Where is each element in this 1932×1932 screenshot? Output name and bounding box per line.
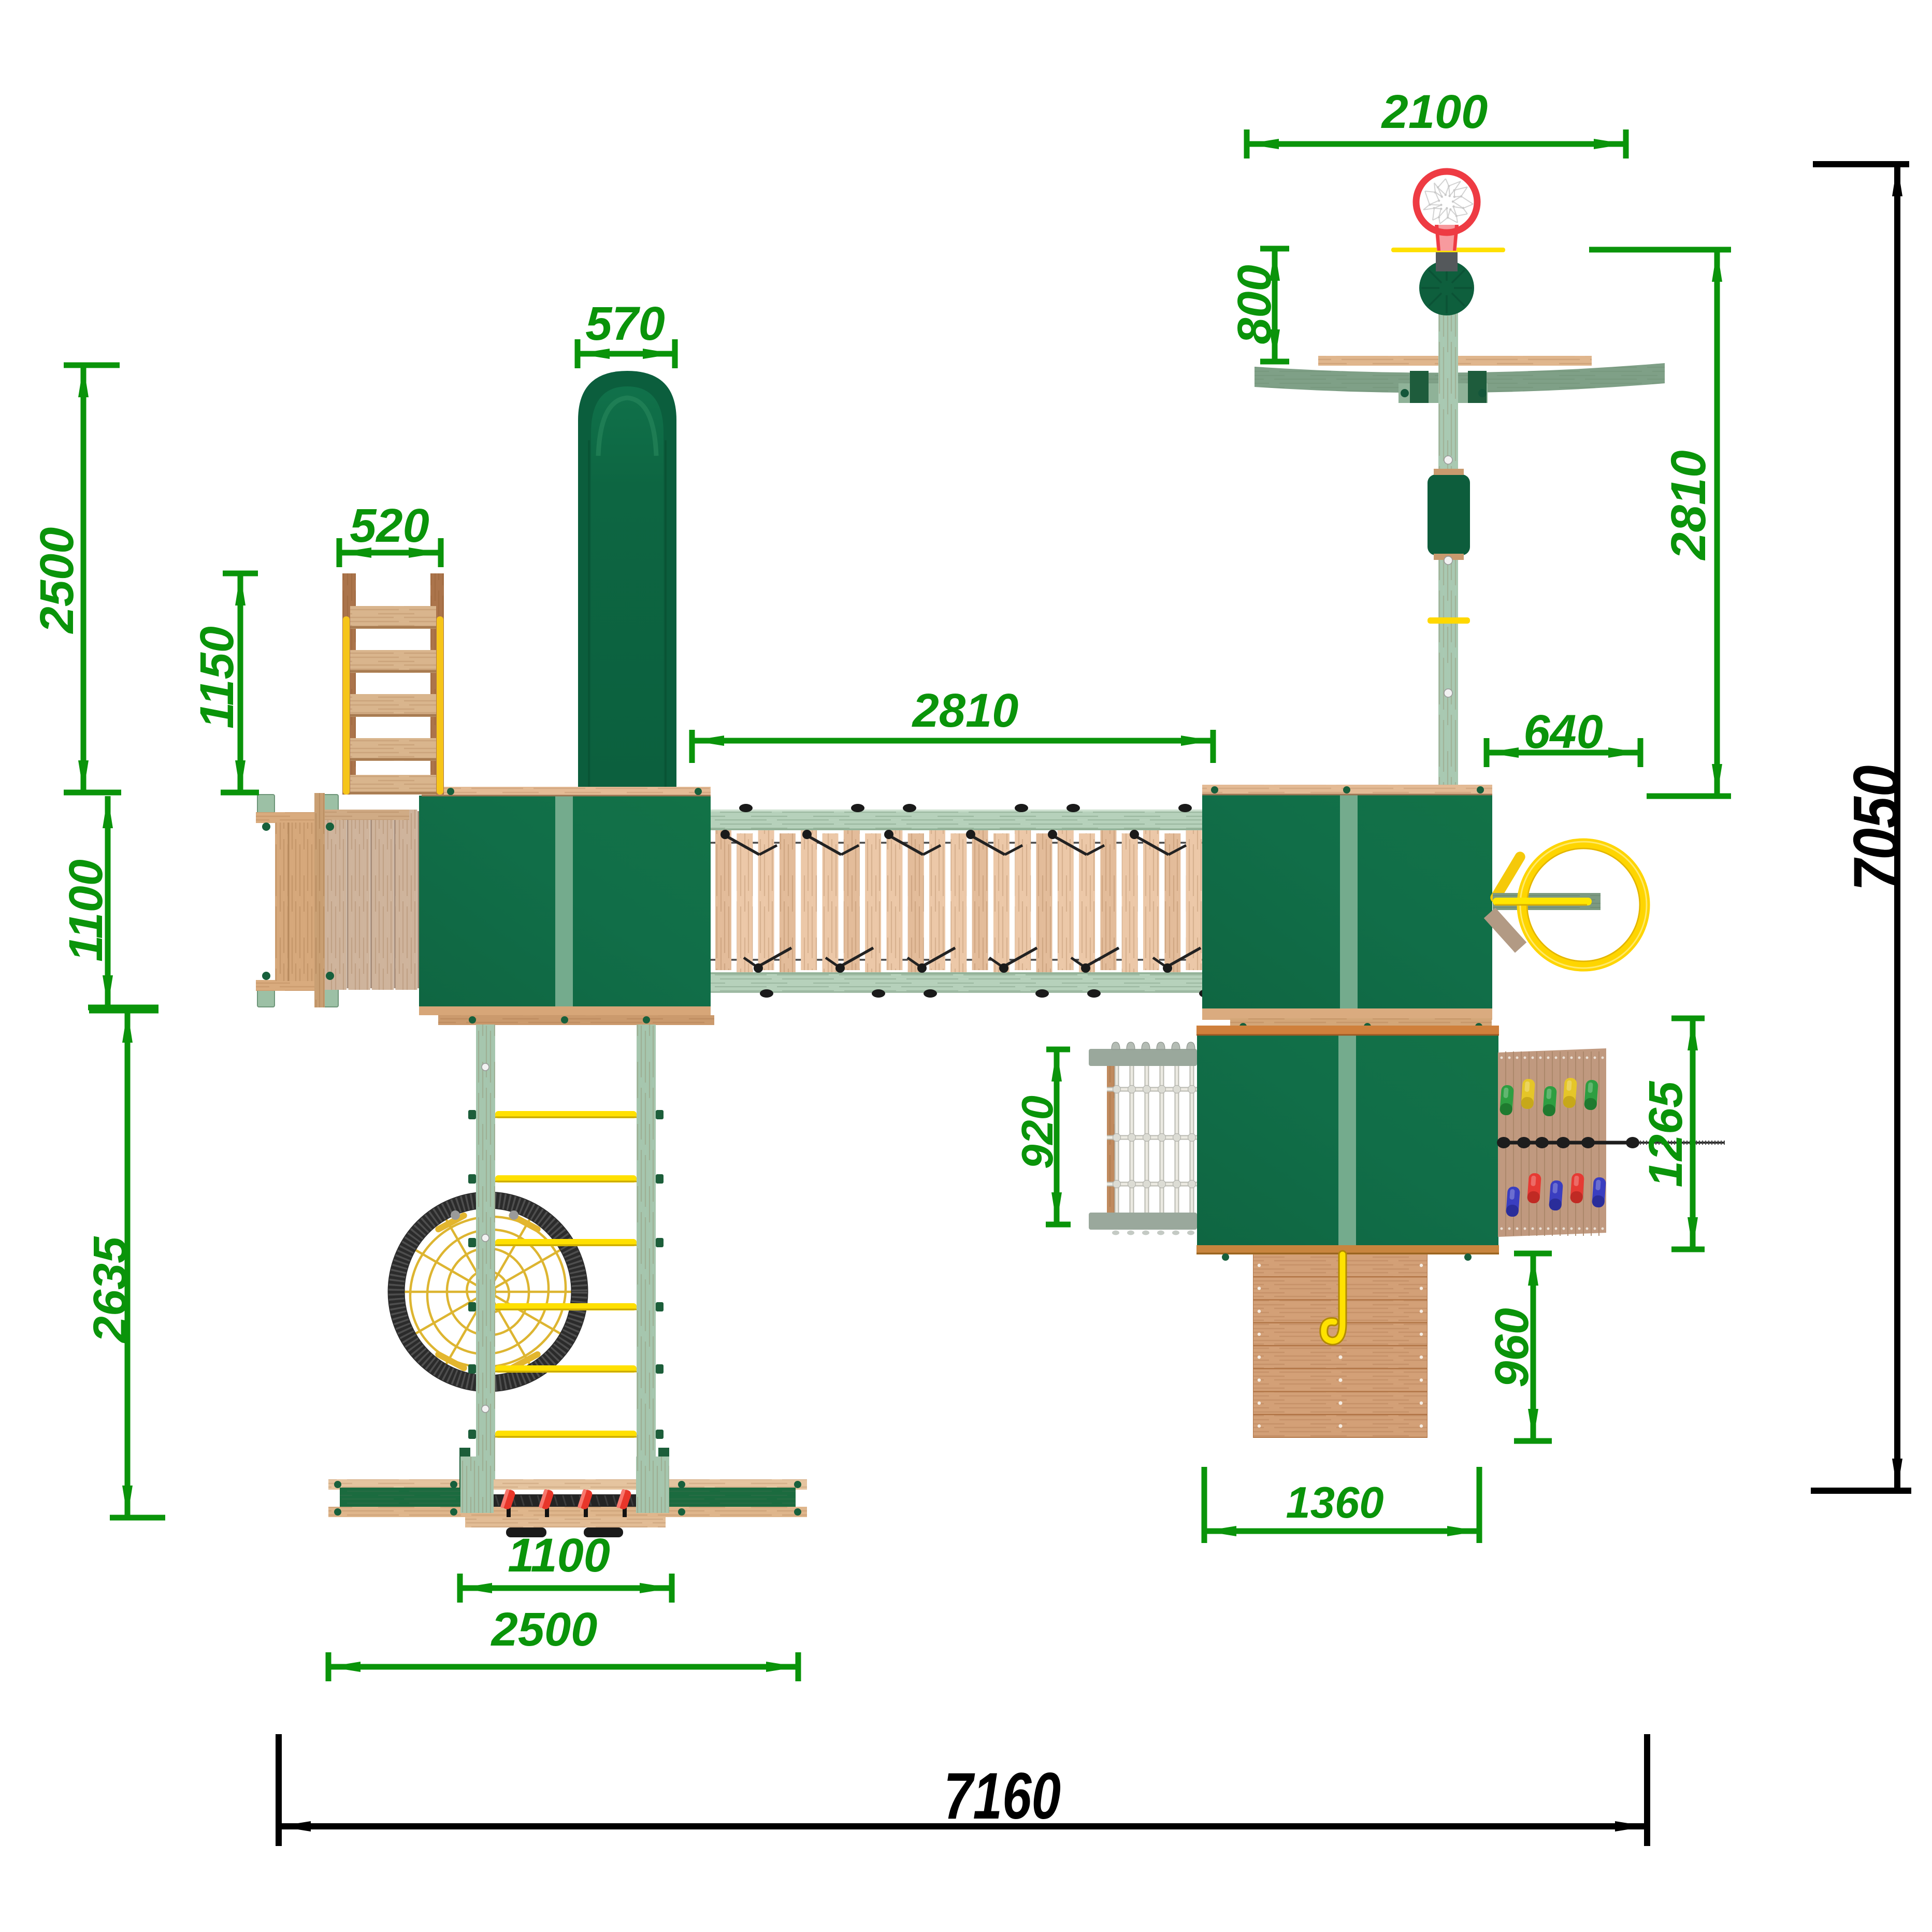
- svg-text:1100: 1100: [60, 859, 112, 962]
- svg-text:2500: 2500: [491, 1603, 598, 1656]
- svg-text:960: 960: [1486, 1308, 1538, 1388]
- svg-text:7050: 7050: [1840, 766, 1914, 891]
- svg-text:920: 920: [1013, 1095, 1062, 1169]
- svg-text:2500: 2500: [31, 527, 83, 635]
- svg-text:7160: 7160: [944, 1760, 1061, 1833]
- svg-text:2100: 2100: [1381, 85, 1488, 138]
- svg-text:1100: 1100: [508, 1529, 610, 1582]
- svg-text:570: 570: [585, 297, 665, 350]
- svg-text:800: 800: [1228, 265, 1281, 344]
- svg-text:2810: 2810: [912, 684, 1019, 737]
- svg-text:520: 520: [350, 499, 429, 552]
- svg-text:1150: 1150: [191, 626, 243, 729]
- svg-text:2810: 2810: [1661, 450, 1716, 560]
- svg-text:2635: 2635: [84, 1236, 137, 1344]
- svg-text:1265: 1265: [1639, 1080, 1692, 1187]
- svg-text:640: 640: [1523, 705, 1603, 758]
- svg-text:1360: 1360: [1286, 1478, 1383, 1527]
